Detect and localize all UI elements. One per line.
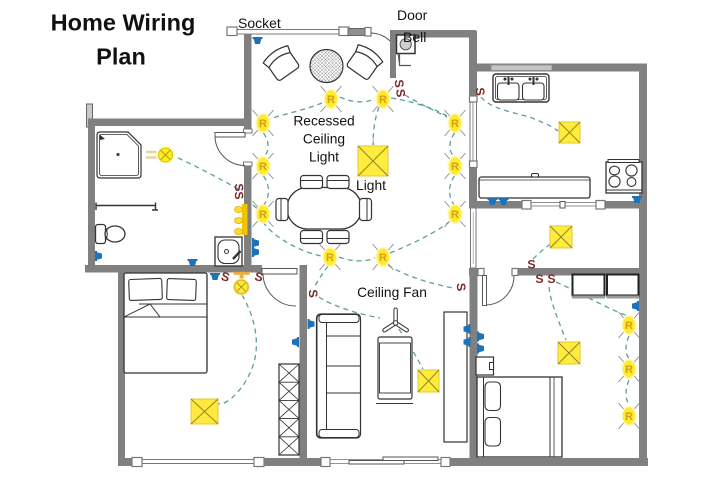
svg-text:Light: Light (309, 150, 339, 165)
svg-text:S: S (392, 79, 407, 88)
svg-text:S: S (535, 272, 543, 286)
svg-text:Recessed: Recessed (293, 114, 354, 129)
svg-text:S: S (454, 282, 469, 291)
svg-text:Bell: Bell (403, 29, 426, 45)
svg-text:Ceiling: Ceiling (303, 132, 345, 147)
svg-text:S: S (232, 191, 247, 200)
svg-text:S: S (473, 87, 488, 96)
svg-text:S: S (393, 88, 408, 97)
svg-text:S: S (527, 258, 535, 272)
svg-text:Home Wiring: Home Wiring (51, 10, 196, 36)
svg-text:S: S (306, 289, 321, 298)
svg-text:S: S (547, 272, 555, 286)
svg-text:Light: Light (356, 178, 386, 193)
svg-text:Plan: Plan (96, 44, 146, 70)
svg-text:Socket: Socket (238, 15, 281, 31)
svg-text:Ceiling Fan: Ceiling Fan (357, 285, 427, 300)
svg-text:Door: Door (397, 7, 428, 23)
